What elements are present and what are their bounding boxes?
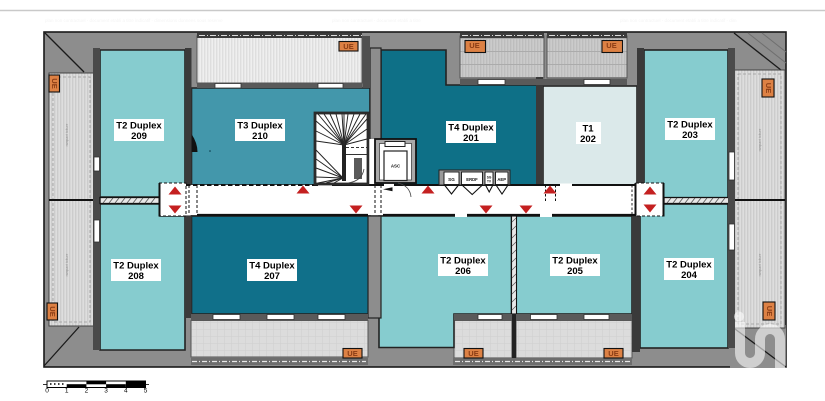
svg-text:UE: UE <box>468 349 478 358</box>
svg-text:3: 3 <box>104 388 108 395</box>
svg-text:205: 205 <box>567 266 584 277</box>
svg-text:plan non contractuel - documen: plan non contractuel - document etabli a… <box>332 18 421 23</box>
svg-text:T2 Duplex: T2 Duplex <box>116 121 162 132</box>
svg-text:5: 5 <box>144 388 148 395</box>
svg-text:UE: UE <box>606 41 616 50</box>
svg-text:SG: SG <box>448 177 455 182</box>
svg-text:ASC: ASC <box>391 164 401 169</box>
svg-text:UE: UE <box>347 349 357 358</box>
svg-text:206: 206 <box>455 266 471 277</box>
svg-text:UE: UE <box>343 42 353 51</box>
svg-text:ERDF: ERDF <box>466 177 478 182</box>
svg-text:T1: T1 <box>582 124 594 135</box>
svg-text:201: 201 <box>463 133 480 144</box>
svg-text:T2 Duplex: T2 Duplex <box>552 256 598 267</box>
svg-text:UE: UE <box>765 306 774 316</box>
svg-text:AEP: AEP <box>497 177 506 182</box>
svg-text:2: 2 <box>85 388 89 395</box>
svg-text:210: 210 <box>252 131 268 142</box>
svg-text:209: 209 <box>131 131 147 142</box>
svg-text:UE: UE <box>48 306 57 316</box>
svg-text:202: 202 <box>580 134 596 145</box>
svg-text:T3 Duplex: T3 Duplex <box>237 121 283 132</box>
svg-text:204: 204 <box>681 270 698 281</box>
svg-text:plan non contractuel - documen: plan non contractuel - document etabli a… <box>620 18 737 23</box>
svg-text:203: 203 <box>682 130 698 141</box>
svg-text:T2 Duplex: T2 Duplex <box>667 120 713 131</box>
svg-text:T2 Duplex: T2 Duplex <box>666 260 712 271</box>
svg-text:207: 207 <box>264 271 280 282</box>
svg-text:T4 Duplex: T4 Duplex <box>249 261 295 272</box>
svg-text:0: 0 <box>45 388 49 395</box>
svg-text:rampant toiture: rampant toiture <box>758 253 762 276</box>
svg-text:T4 Duplex: T4 Duplex <box>448 123 494 134</box>
svg-text:UE: UE <box>50 78 59 88</box>
svg-text:T2 Duplex: T2 Duplex <box>440 256 486 267</box>
svg-text:UE: UE <box>469 41 479 50</box>
svg-text:1: 1 <box>65 388 69 395</box>
svg-text:rampant toiture: rampant toiture <box>65 253 69 276</box>
svg-text:UE: UE <box>764 83 773 93</box>
svg-text:4: 4 <box>124 388 128 395</box>
svg-text:UE: UE <box>608 349 618 358</box>
svg-text:T2 Duplex: T2 Duplex <box>113 261 159 272</box>
svg-text:plan non contractuel - documen: plan non contractuel - document etabli a… <box>45 18 223 23</box>
svg-text:rampant toiture: rampant toiture <box>65 123 69 146</box>
svg-text:208: 208 <box>128 271 144 282</box>
svg-text:rampant toiture: rampant toiture <box>758 128 762 151</box>
